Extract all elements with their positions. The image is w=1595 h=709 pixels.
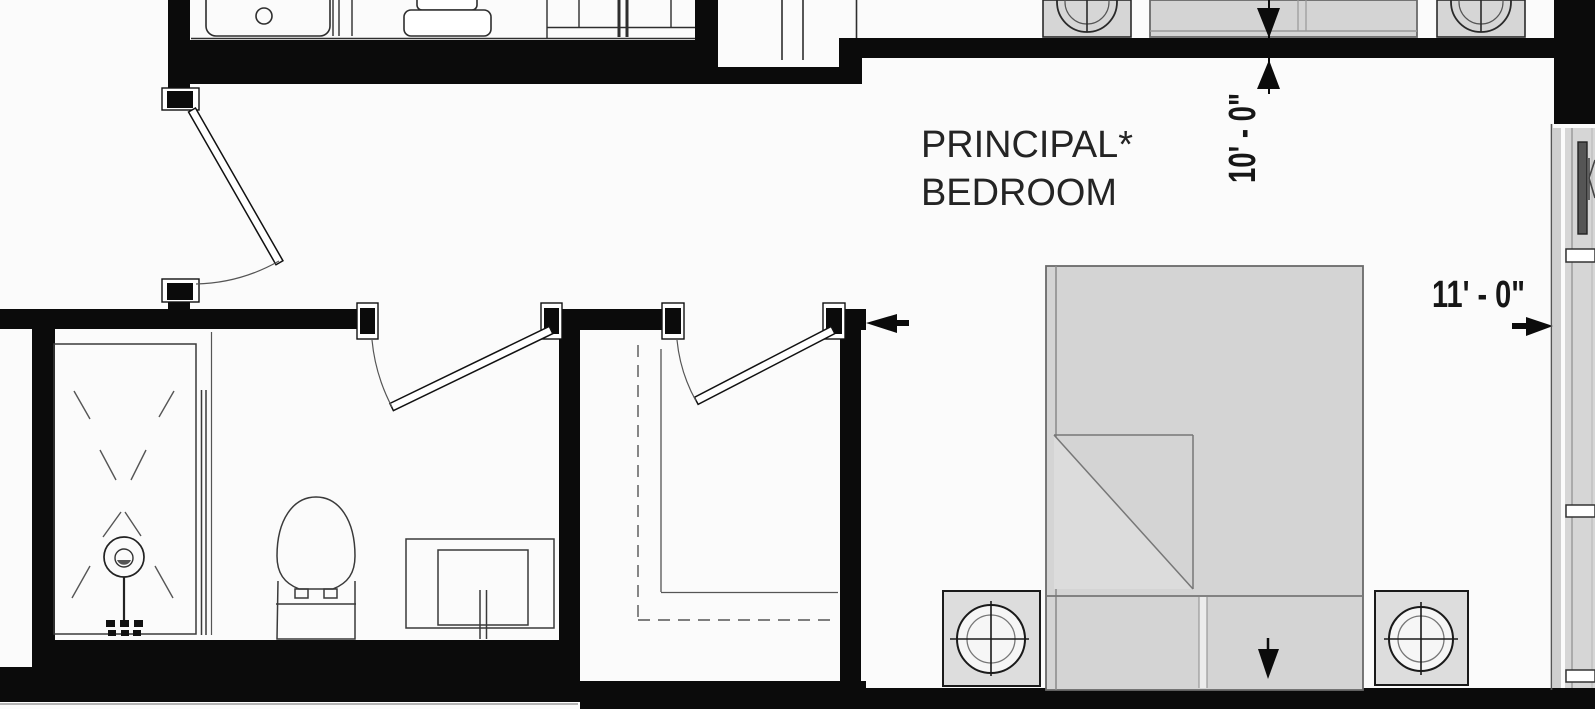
svg-text:PRINCIPAL*: PRINCIPAL* bbox=[921, 124, 1133, 166]
svg-text:BEDROOM: BEDROOM bbox=[921, 172, 1117, 214]
svg-text:10' - 0": 10' - 0" bbox=[1222, 93, 1264, 183]
svg-text:11' - 0": 11' - 0" bbox=[1432, 274, 1525, 316]
